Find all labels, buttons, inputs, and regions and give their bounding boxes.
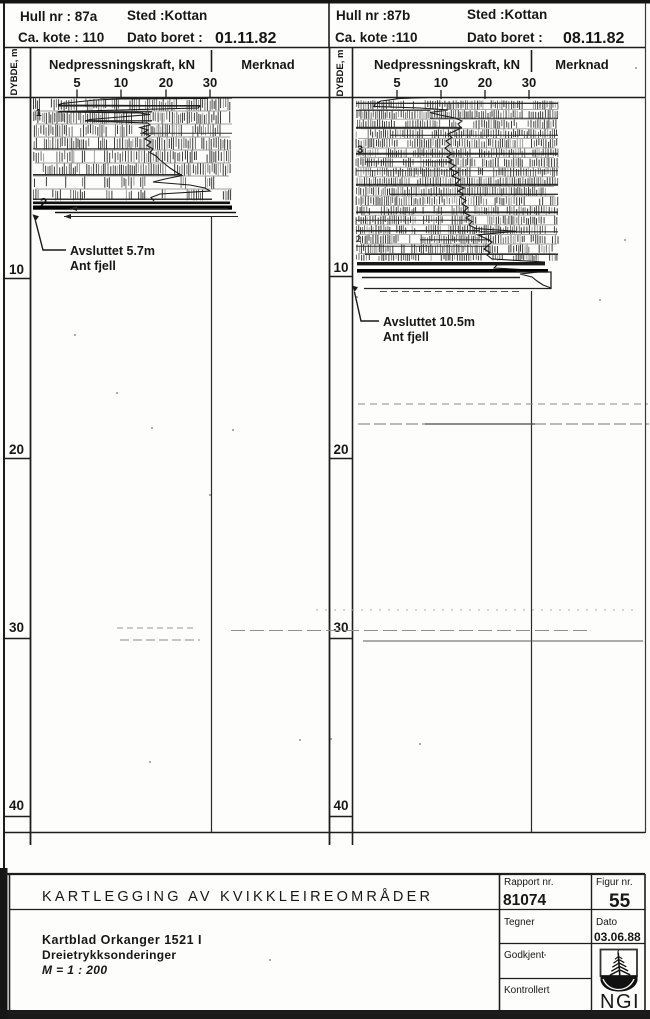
svg-text:DYBDE, m: DYBDE, m bbox=[9, 49, 20, 96]
svg-text:10: 10 bbox=[434, 75, 448, 90]
svg-text:Avsluttet 5.7m: Avsluttet 5.7m bbox=[70, 244, 155, 258]
svg-text:Nedpressningskraft, kN: Nedpressningskraft, kN bbox=[374, 57, 520, 72]
svg-text:Ant fjell: Ant fjell bbox=[383, 330, 429, 344]
svg-text:20: 20 bbox=[159, 75, 173, 90]
svg-text:KARTLEGGING AV KVIKKLEIREOMRÅD: KARTLEGGING AV KVIKKLEIREOMRÅDER bbox=[42, 888, 433, 905]
svg-text:10: 10 bbox=[333, 260, 348, 275]
svg-text:40: 40 bbox=[333, 798, 348, 813]
svg-text:Ca. kote : 110: Ca. kote : 110 bbox=[18, 30, 104, 45]
svg-text:20: 20 bbox=[9, 442, 24, 457]
svg-text:Merknad: Merknad bbox=[555, 57, 609, 72]
svg-text:30: 30 bbox=[9, 620, 24, 635]
svg-text:30: 30 bbox=[203, 75, 217, 90]
svg-text:30: 30 bbox=[333, 620, 348, 635]
svg-text:5: 5 bbox=[73, 75, 80, 90]
svg-text:Sted :Kottan: Sted :Kottan bbox=[467, 7, 547, 22]
svg-text:Hull nr : 87a: Hull nr : 87a bbox=[20, 9, 98, 24]
svg-text:Dato boret :: Dato boret : bbox=[467, 30, 543, 45]
svg-text:20: 20 bbox=[478, 75, 492, 90]
svg-text:Rapport nr.: Rapport nr. bbox=[504, 877, 553, 888]
svg-text:2: 2 bbox=[356, 234, 361, 244]
svg-text:Avsluttet 10.5m: Avsluttet 10.5m bbox=[383, 315, 475, 329]
svg-text:08.11.82: 08.11.82 bbox=[563, 30, 625, 47]
svg-text:20: 20 bbox=[333, 442, 348, 457]
svg-text:10: 10 bbox=[114, 75, 128, 90]
svg-text:Hull nr :87b: Hull nr :87b bbox=[336, 8, 410, 23]
svg-text:01.11.82: 01.11.82 bbox=[215, 30, 277, 47]
svg-text:10: 10 bbox=[9, 262, 24, 277]
svg-text:03.06.88: 03.06.88 bbox=[594, 930, 641, 944]
svg-text:Kartblad Orkanger 1521 I: Kartblad Orkanger 1521 I bbox=[42, 933, 202, 947]
svg-text:1: 1 bbox=[36, 108, 42, 119]
svg-text:Godkjent: Godkjent bbox=[504, 950, 544, 961]
svg-text:DYBDE, m: DYBDE, m bbox=[335, 50, 346, 97]
svg-text:40: 40 bbox=[9, 798, 24, 813]
svg-text:Dato: Dato bbox=[596, 917, 618, 928]
svg-text:M = 1 : 200: M = 1 : 200 bbox=[42, 963, 107, 977]
svg-text:Merknad: Merknad bbox=[241, 57, 295, 72]
svg-text:5: 5 bbox=[393, 75, 400, 90]
svg-text:Ca. kote :110: Ca. kote :110 bbox=[335, 30, 418, 45]
svg-text:Dato boret :: Dato boret : bbox=[127, 30, 203, 45]
svg-text:81074: 81074 bbox=[503, 892, 546, 909]
svg-text:Figur nr.: Figur nr. bbox=[596, 877, 633, 888]
svg-text:3: 3 bbox=[357, 144, 363, 156]
svg-text:Ant fjell: Ant fjell bbox=[70, 259, 116, 273]
svg-text:NGI: NGI bbox=[600, 991, 640, 1013]
svg-text:55: 55 bbox=[609, 891, 631, 912]
svg-text:Nedpressningskraft, kN: Nedpressningskraft, kN bbox=[49, 57, 195, 72]
svg-text:Dreietrykksonderinger: Dreietrykksonderinger bbox=[42, 948, 176, 962]
svg-text:Tegner: Tegner bbox=[504, 917, 535, 928]
svg-text:30: 30 bbox=[522, 75, 536, 90]
svg-text:Kontrollert: Kontrollert bbox=[504, 985, 550, 996]
svg-text:Sted :Kottan: Sted :Kottan bbox=[127, 8, 207, 23]
